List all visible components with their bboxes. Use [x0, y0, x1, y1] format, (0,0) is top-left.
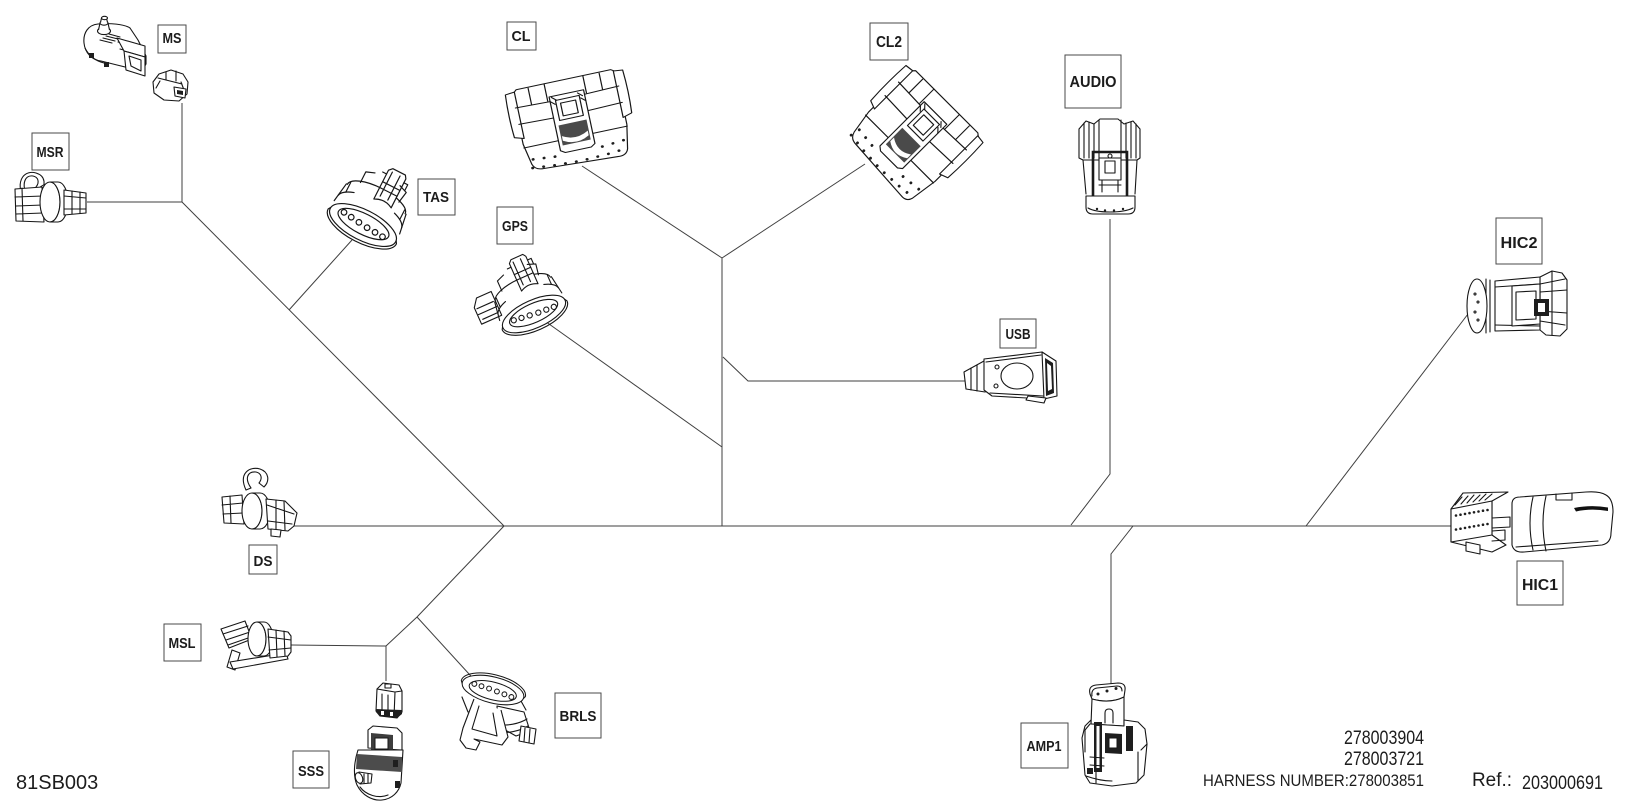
svg-text:MSL: MSL [169, 635, 196, 652]
svg-text:DS: DS [254, 553, 273, 570]
svg-text:TAS: TAS [423, 189, 449, 206]
svg-text:HIC1: HIC1 [1522, 577, 1558, 594]
svg-text:203000691: 203000691 [1522, 773, 1603, 794]
svg-text:278003721: 278003721 [1344, 749, 1424, 770]
svg-text:MS: MS [163, 30, 182, 47]
svg-text:AUDIO: AUDIO [1070, 74, 1117, 91]
svg-text:Ref.:: Ref.: [1472, 770, 1512, 791]
svg-text:MSR: MSR [37, 144, 64, 161]
svg-text:GPS: GPS [502, 218, 528, 235]
svg-text:BRLS: BRLS [560, 708, 597, 725]
svg-text:HIC2: HIC2 [1501, 235, 1538, 252]
svg-text:AMP1: AMP1 [1027, 738, 1062, 755]
svg-text:USB: USB [1006, 326, 1031, 343]
svg-text:CL2: CL2 [876, 34, 902, 51]
svg-text:HARNESS NUMBER:278003851: HARNESS NUMBER:278003851 [1203, 771, 1424, 790]
svg-text:SSS: SSS [298, 763, 324, 780]
svg-text:278003904: 278003904 [1344, 728, 1424, 749]
svg-text:CL: CL [512, 28, 531, 45]
svg-text:81SB003: 81SB003 [16, 772, 98, 794]
